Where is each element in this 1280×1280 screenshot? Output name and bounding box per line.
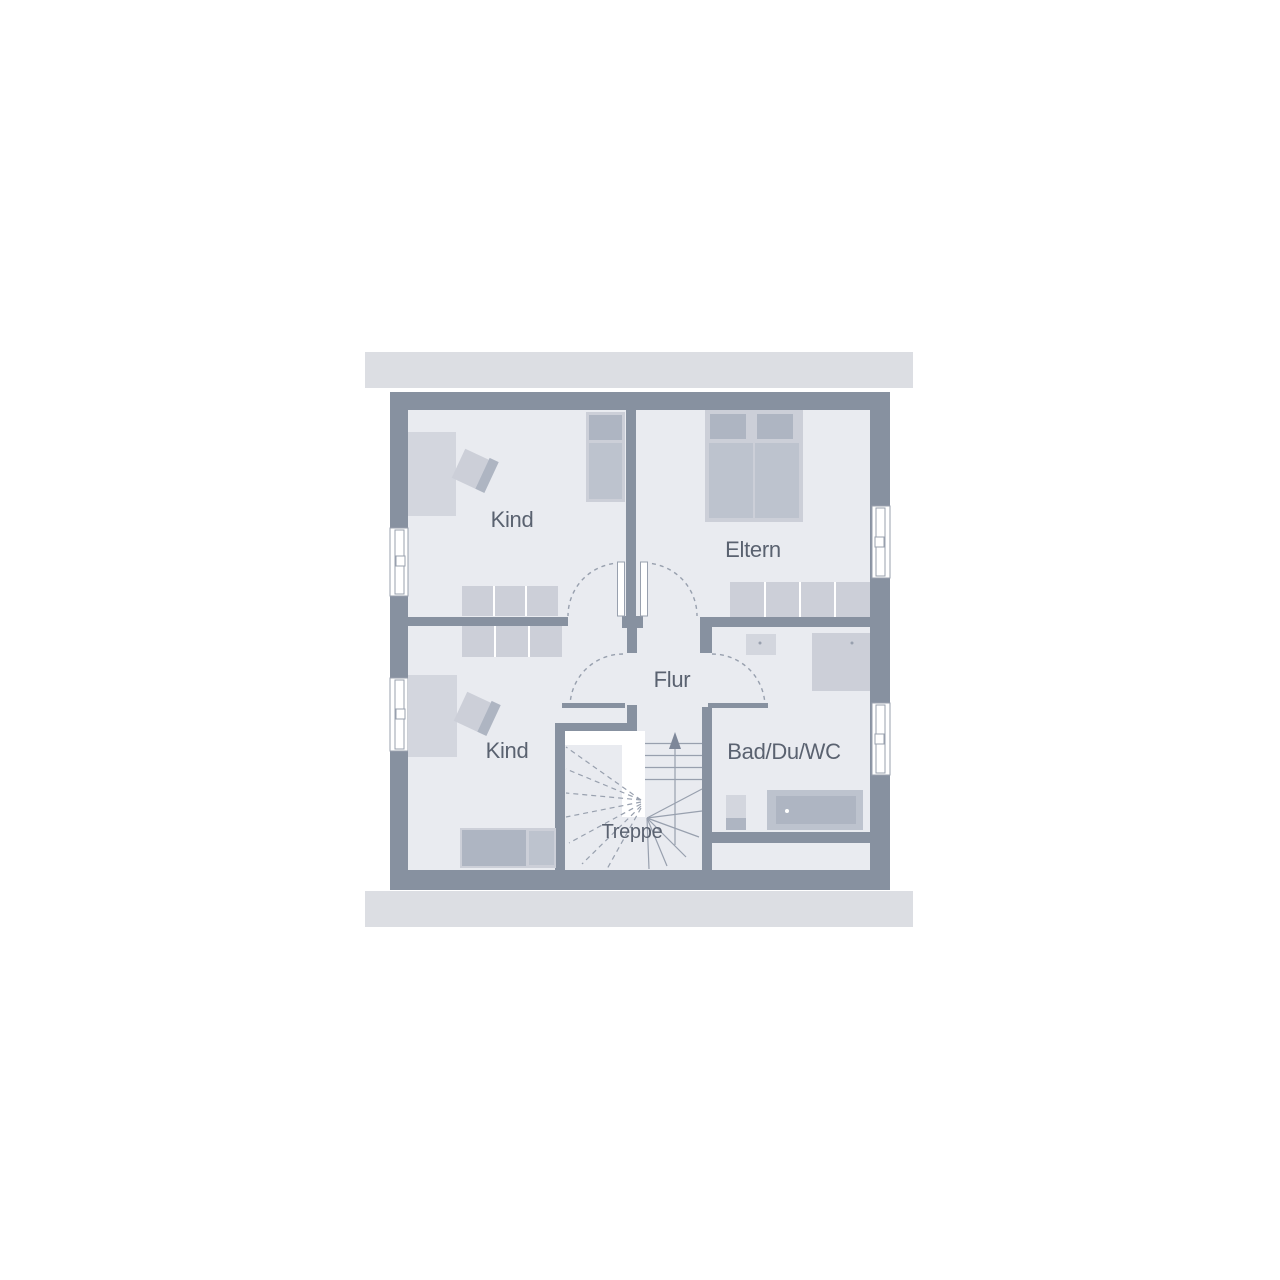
wall-bad-bottom — [712, 832, 870, 843]
wall-stair-right — [702, 707, 712, 870]
wall-bad-stub — [700, 627, 712, 653]
toilet — [726, 795, 746, 830]
bed-kind-top-left — [408, 432, 456, 516]
window-right-bottom — [872, 703, 890, 775]
wall-kind-kind — [408, 617, 568, 626]
door-leaf-bad — [708, 703, 768, 708]
door-leaf-kind-bottom — [562, 703, 625, 708]
bottom-slab — [365, 891, 913, 927]
floor-plan-drawing: Kind Eltern Kind Flur Bad/Du/WC Treppe — [0, 0, 1280, 1280]
wardrobe-kind-bottom — [462, 626, 562, 657]
label-flur: Flur — [654, 667, 691, 692]
window-left-top — [390, 528, 408, 596]
label-kind-bottom: Kind — [486, 738, 529, 763]
floor-plan-page: Kind Eltern Kind Flur Bad/Du/WC Treppe — [0, 0, 1280, 1280]
label-kind-top: Kind — [491, 507, 534, 532]
top-slab — [365, 352, 913, 388]
wardrobe-eltern — [730, 582, 870, 617]
double-bed-eltern — [705, 410, 803, 522]
bed-kind-bottom-left — [408, 675, 457, 757]
bed-kind-top — [586, 412, 625, 502]
sink — [746, 634, 776, 655]
label-treppe: Treppe — [602, 821, 663, 843]
label-eltern: Eltern — [725, 537, 781, 562]
wall-center-stub-base — [622, 616, 643, 628]
door-leaf-eltern — [641, 562, 648, 616]
wall-stair-stub — [627, 705, 637, 724]
wall-center-stub — [627, 628, 637, 653]
window-left-bottom — [390, 678, 408, 751]
window-right-top — [872, 506, 890, 578]
label-bad: Bad/Du/WC — [727, 739, 841, 764]
bathtub — [767, 790, 863, 830]
wardrobe-kind-top — [462, 586, 558, 616]
wall-kind-eltern — [626, 410, 636, 617]
door-leaf-kind-top — [618, 562, 625, 616]
bed-kind-bottom — [460, 828, 556, 868]
shower — [812, 633, 870, 691]
wall-stair-left — [555, 723, 565, 870]
wall-eltern-bad — [700, 617, 870, 627]
